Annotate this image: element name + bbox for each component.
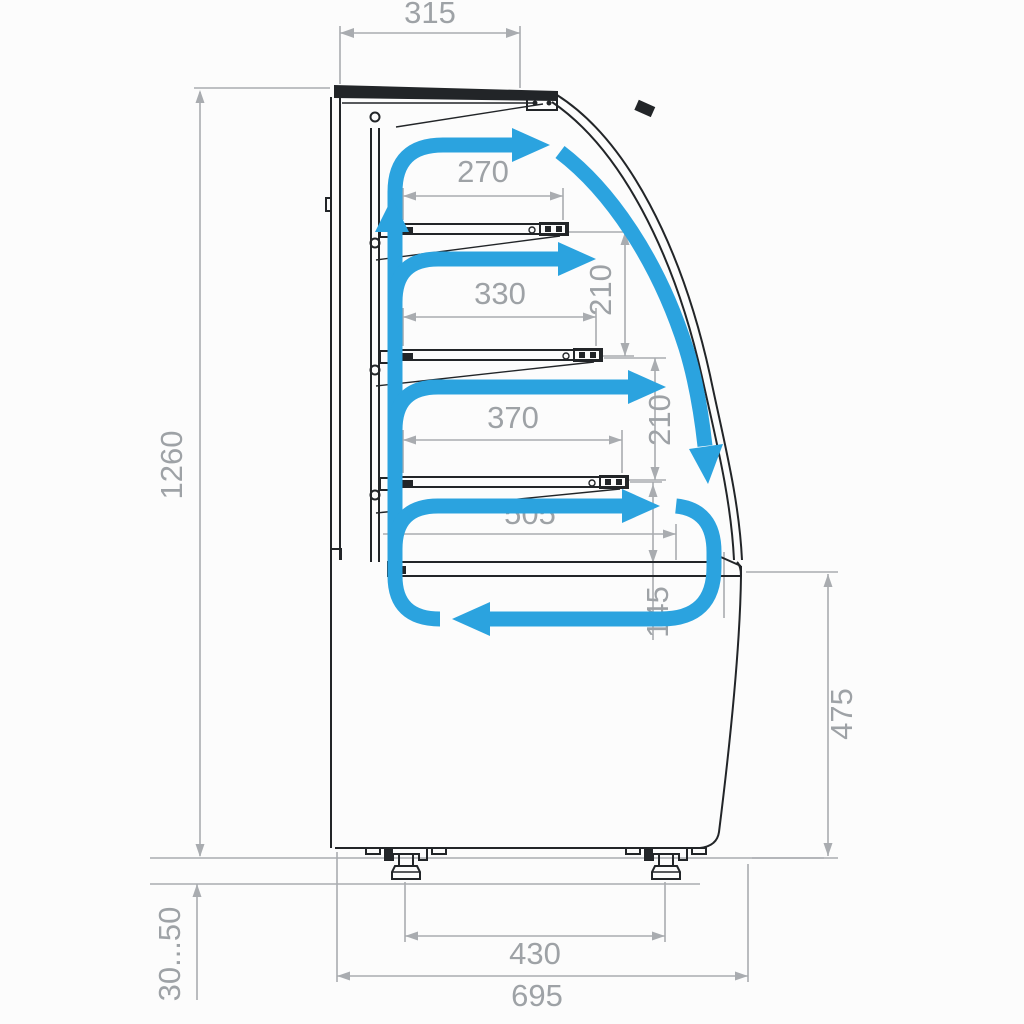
airflow-return-arrowhead xyxy=(452,602,490,636)
dim-top-width: 315 xyxy=(340,0,520,88)
dim-shelf-1: 270 xyxy=(403,154,563,220)
dim-label-top-width: 315 xyxy=(404,0,456,30)
adjustable-foot-right xyxy=(626,848,706,879)
dim-front-height: 475 xyxy=(746,572,859,858)
floor-lines xyxy=(150,858,824,884)
bottom-deck xyxy=(388,554,741,576)
display-case-section-diagram: 315 1260 270 330 370 xyxy=(0,0,1024,1024)
airflow-top-arrowhead xyxy=(512,128,550,162)
technical-drawing-page: 315 1260 270 330 370 xyxy=(0,0,1024,1024)
dim-label-shelf-gap-2: 210 xyxy=(642,394,677,446)
canopy xyxy=(334,85,655,127)
airflow-glass-arrowhead xyxy=(689,444,723,484)
rear-wall xyxy=(326,97,380,562)
dim-total-depth: 695 xyxy=(337,852,748,1013)
dim-total-height: 1260 xyxy=(154,88,330,857)
glass-top-bracket xyxy=(634,100,655,117)
airflow-arrows xyxy=(375,128,723,636)
dim-label-total-height: 1260 xyxy=(154,431,189,500)
dim-label-front-height: 475 xyxy=(824,688,859,740)
dim-label-shelf-1: 270 xyxy=(457,154,509,189)
dim-feet-spacing: 430 xyxy=(405,882,665,971)
dim-shelf-3: 370 xyxy=(403,400,622,473)
rear-wall-hole xyxy=(371,113,380,122)
dim-label-foot-adjust: 30...50 xyxy=(152,907,187,1002)
dim-label-shelf-3: 370 xyxy=(487,400,539,435)
dim-label-shelf-2: 330 xyxy=(474,276,526,311)
adjustable-foot-left xyxy=(366,848,446,879)
airflow-up-arrowhead xyxy=(375,198,409,232)
dim-label-total-depth: 695 xyxy=(511,978,563,1013)
dim-label-shelf-gap-1: 210 xyxy=(583,264,618,316)
dim-shelf-2: 330 xyxy=(403,276,596,346)
dim-label-feet-spacing: 430 xyxy=(509,936,561,971)
dim-foot-adjust: 30...50 xyxy=(152,884,202,1001)
